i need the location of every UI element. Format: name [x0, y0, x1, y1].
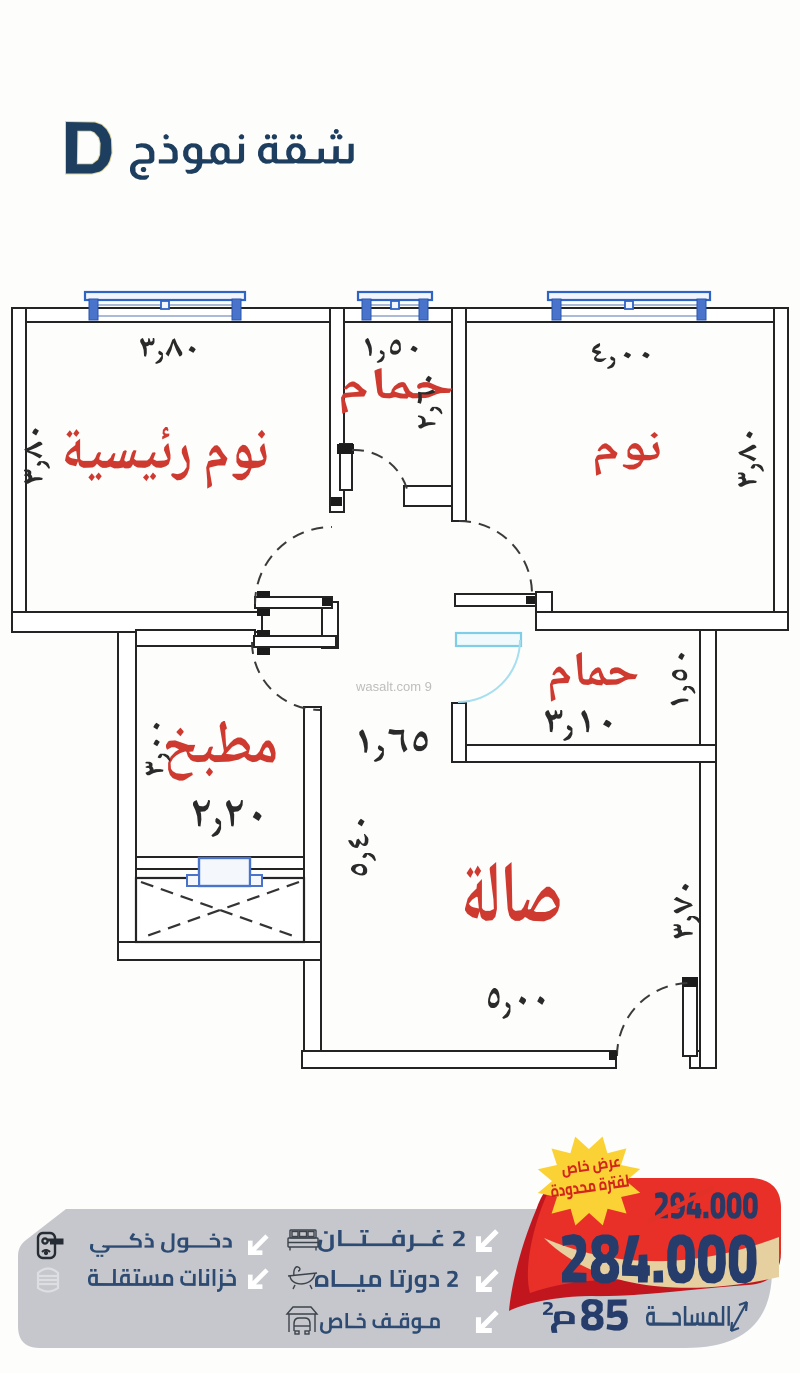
- svg-text:wasalt.com 9: wasalt.com 9: [355, 679, 432, 694]
